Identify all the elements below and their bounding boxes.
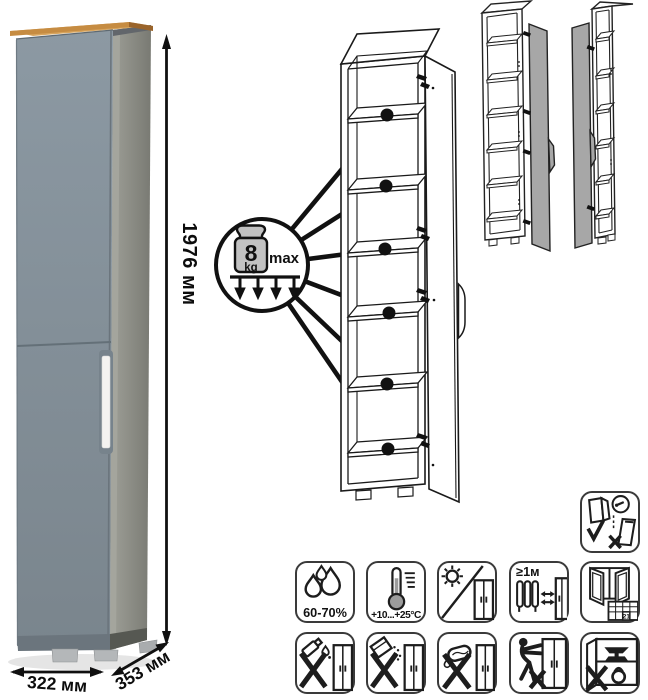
width-dimension-label: 322 мм [27, 672, 88, 696]
open-window-calendar-glyph: 21 [582, 563, 638, 621]
door-variant-right-hinged [482, 1, 555, 251]
variant-handle [549, 139, 555, 172]
door-handle [102, 356, 110, 448]
temperature-label: +10...+25°C [371, 610, 422, 621]
front-plinth [17, 634, 110, 651]
heat-source-distance-icon: ≥1м [509, 561, 569, 623]
max-load-qualifier: max [269, 250, 300, 267]
max-load-unit: kg [244, 262, 257, 274]
calendar-day: 21 [623, 613, 631, 620]
anvil-overload-glyph [582, 634, 638, 692]
no-sponge-glyph [439, 634, 495, 692]
wall-anchor-warning-icon [580, 491, 640, 553]
person-pushing-glyph [511, 634, 567, 692]
humidity-icon: 60-70% [295, 561, 355, 623]
arrowhead-left [10, 667, 24, 677]
variant-door-panel [572, 23, 592, 248]
wall-anchor-glyph [582, 493, 638, 551]
water-drops-glyph: 60-70% [297, 563, 353, 621]
no-liquids-glyph [297, 634, 353, 692]
no-powder-glyph [368, 634, 424, 692]
product-sheet: 1976 мм 322 мм 353 мм [0, 0, 648, 700]
kettlebell-glyph [613, 671, 625, 683]
variant-door-panel [529, 24, 550, 251]
door-variant-left-hinged [572, 2, 633, 248]
no-wet-cleaning-icon [437, 632, 497, 694]
person-figure [521, 645, 540, 681]
height-dimension-label: 1976 мм [178, 222, 200, 305]
cabinet-door [16, 30, 113, 646]
shelf-load-diagram: 8 kg max [216, 29, 465, 502]
cross-mark [372, 653, 396, 687]
weight-knob [237, 226, 265, 239]
cabinet-photo [8, 22, 157, 670]
no-overloading-icon [580, 632, 640, 694]
ventilation-icon: 21 [580, 561, 640, 623]
no-dragging-icon [509, 632, 569, 694]
no-direct-sunlight-icon [437, 561, 497, 623]
open-cabinet-drawing [341, 29, 465, 502]
sun-slash-wardrobe-glyph [439, 563, 495, 621]
temperature-icon: +10...+25°C [366, 561, 426, 623]
no-abrasive-powder-icon [366, 632, 426, 694]
cross-mark [301, 653, 325, 687]
open-door [425, 56, 465, 502]
arrowhead-up [162, 34, 171, 49]
foot [94, 650, 118, 661]
thermometer-glyph: +10...+25°C [368, 563, 424, 621]
max-load-callout: 8 kg max [216, 219, 308, 311]
humidity-label: 60-70% [303, 605, 347, 620]
distance-label: ≥1м [516, 564, 539, 579]
foot [52, 649, 78, 662]
door-handle-outline [459, 284, 466, 338]
radiator-distance-glyph: ≥1м [511, 563, 567, 621]
no-liquids-icon [295, 632, 355, 694]
